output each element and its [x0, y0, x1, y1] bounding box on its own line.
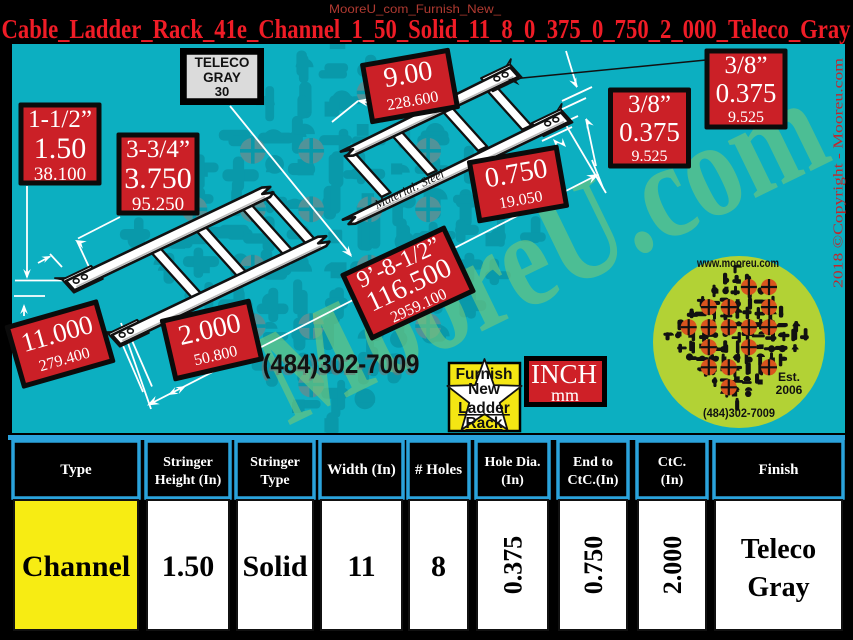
- svg-text:0.375: 0.375: [619, 117, 680, 147]
- svg-text:3-3/4”: 3-3/4”: [126, 136, 190, 163]
- svg-text:1.50: 1.50: [162, 550, 215, 583]
- svg-text:0.375: 0.375: [716, 78, 777, 108]
- svg-text:Teleco: Teleco: [741, 534, 816, 565]
- svg-text:Width (In): Width (In): [327, 462, 396, 478]
- svg-text:1-1/2”: 1-1/2”: [28, 106, 92, 133]
- svg-text:2.000: 2.000: [658, 536, 687, 595]
- svg-text:9.525: 9.525: [728, 109, 764, 126]
- svg-text:9.525: 9.525: [632, 148, 668, 165]
- svg-text:Solid: Solid: [242, 550, 307, 583]
- svg-text:End to: End to: [573, 455, 613, 470]
- svg-text:mm: mm: [551, 385, 579, 405]
- svg-text:Est.: Est.: [778, 370, 800, 384]
- svg-text:(In): (In): [501, 473, 524, 488]
- svg-text:8: 8: [431, 550, 446, 583]
- svg-text:Finish: Finish: [758, 462, 799, 478]
- svg-text:3/8”: 3/8”: [724, 52, 767, 79]
- svg-text:3.750: 3.750: [124, 162, 192, 195]
- svg-text:Type: Type: [260, 473, 289, 488]
- svg-text:Height (In): Height (In): [155, 473, 222, 488]
- svg-text:1.50: 1.50: [34, 132, 87, 165]
- svg-text:95.250: 95.250: [132, 194, 184, 215]
- svg-text:CtC.: CtC.: [658, 455, 686, 470]
- svg-text:2006: 2006: [776, 383, 803, 397]
- svg-text:Cable_Ladder_Rack_41e_Channel_: Cable_Ladder_Rack_41e_Channel_1_50_Solid…: [2, 14, 851, 44]
- svg-text:CtC.(In): CtC.(In): [568, 473, 619, 488]
- svg-text:New: New: [468, 381, 501, 398]
- svg-text:0.375: 0.375: [499, 536, 528, 595]
- svg-text:(484)302-7009: (484)302-7009: [263, 349, 420, 379]
- svg-text:11: 11: [347, 550, 375, 583]
- svg-text:Type: Type: [60, 462, 92, 478]
- svg-text:TELECO: TELECO: [195, 55, 250, 70]
- svg-text:Channel: Channel: [22, 550, 130, 583]
- svg-text:0.750: 0.750: [579, 536, 608, 595]
- svg-text:Gray: Gray: [747, 572, 809, 603]
- svg-text:Hole Dia.: Hole Dia.: [485, 455, 541, 470]
- svg-text:(In): (In): [661, 473, 684, 488]
- svg-text:# Holes: # Holes: [415, 462, 462, 478]
- svg-text:www.mooreu.com: www.mooreu.com: [696, 256, 779, 270]
- svg-text:Stringer: Stringer: [250, 455, 300, 470]
- svg-text:Stringer: Stringer: [163, 455, 213, 470]
- svg-text:3/8”: 3/8”: [628, 91, 671, 118]
- svg-text:30: 30: [215, 84, 229, 99]
- svg-text:Rack: Rack: [465, 415, 502, 432]
- svg-text:38.100: 38.100: [34, 164, 86, 185]
- svg-text:GRAY: GRAY: [203, 70, 241, 85]
- svg-text:2018 ©Copyright - Mooreu.com: 2018 ©Copyright - Mooreu.com: [832, 58, 847, 288]
- svg-text:(484)302-7009: (484)302-7009: [703, 406, 775, 420]
